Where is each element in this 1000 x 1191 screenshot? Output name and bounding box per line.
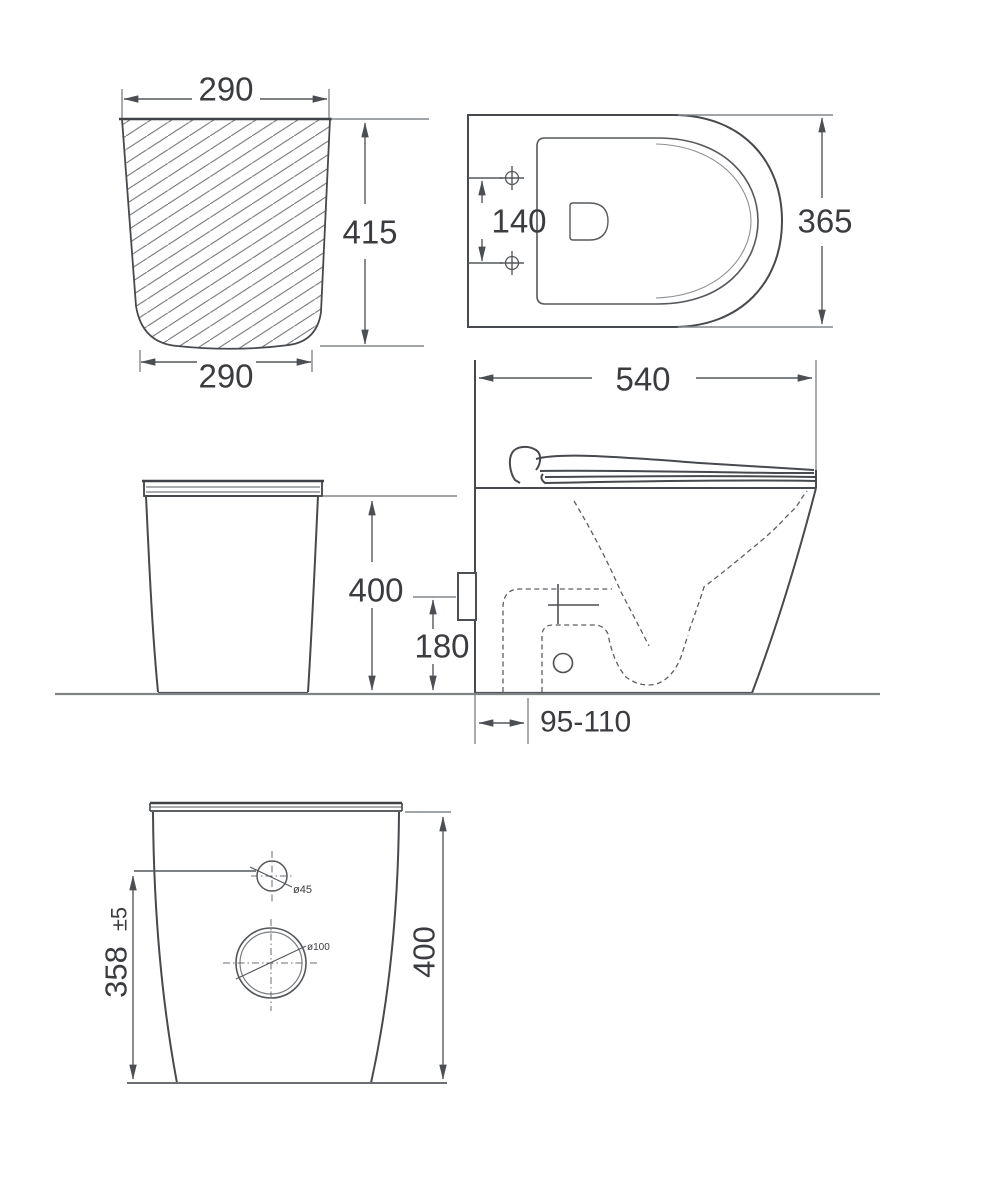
seat-lid-front (142, 481, 324, 496)
rear-view: ø45 ø100 358 ±5 400 (99, 803, 452, 1083)
rear-body-outline (153, 812, 399, 1083)
toilet-dimension-drawing: 290 415 290 (0, 0, 1000, 1191)
water-inlet (458, 573, 476, 620)
dim-section-bottom-width: 290 (140, 350, 312, 395)
small-hole-label: ø45 (293, 884, 312, 896)
side-length-value: 540 (615, 361, 670, 398)
dim-outlet-setout: 95-110 (475, 695, 631, 744)
large-hole-label: ø100 (307, 942, 330, 953)
trapway-dashed (503, 491, 807, 692)
front-height-value: 400 (348, 572, 403, 609)
section-view: 290 415 290 (119, 71, 429, 395)
hole-height-value: 358 (99, 946, 134, 998)
inlet-center-mark (548, 584, 599, 624)
dim-hole-height: 358 ±5 (99, 871, 257, 1079)
technical-drawing-page: 290 415 290 (0, 0, 1000, 1191)
hole-height-tolerance: ±5 (107, 907, 132, 931)
front-body-outline (146, 496, 318, 692)
dim-rear-height: 400 (405, 812, 451, 1079)
section-top-width-value: 290 (198, 71, 253, 108)
section-bottom-width-value: 290 (198, 358, 253, 395)
bolt-hole-bottom (500, 251, 524, 275)
top-view: 140 365 (468, 115, 853, 327)
seat-lid-profile (510, 447, 816, 488)
large-hole: ø100 (223, 919, 330, 1011)
rear-lid (150, 803, 402, 811)
top-view-width-value: 365 (797, 203, 852, 240)
inlet-height-value: 180 (414, 628, 469, 665)
dim-section-height: 415 (320, 119, 429, 346)
bolt-spacing-value: 140 (491, 203, 546, 240)
drain-hole (554, 654, 573, 673)
dim-top-view-width: 365 (678, 115, 853, 327)
section-outline (122, 119, 330, 349)
side-view: 540 (458, 360, 816, 744)
front-view: 400 180 (142, 481, 470, 693)
section-height-value: 415 (342, 214, 397, 251)
outlet-setout-value: 95-110 (540, 706, 631, 739)
small-hole: ø45 (250, 851, 312, 903)
rear-height-value: 400 (407, 926, 442, 978)
bolt-hole-top (500, 166, 524, 190)
flush-button-outline (570, 203, 608, 240)
dim-side-length: 540 (479, 361, 812, 398)
dim-section-top-width: 290 (122, 71, 329, 119)
bowl-front-slant (752, 488, 816, 693)
dim-bolt-spacing: 140 (468, 178, 547, 263)
